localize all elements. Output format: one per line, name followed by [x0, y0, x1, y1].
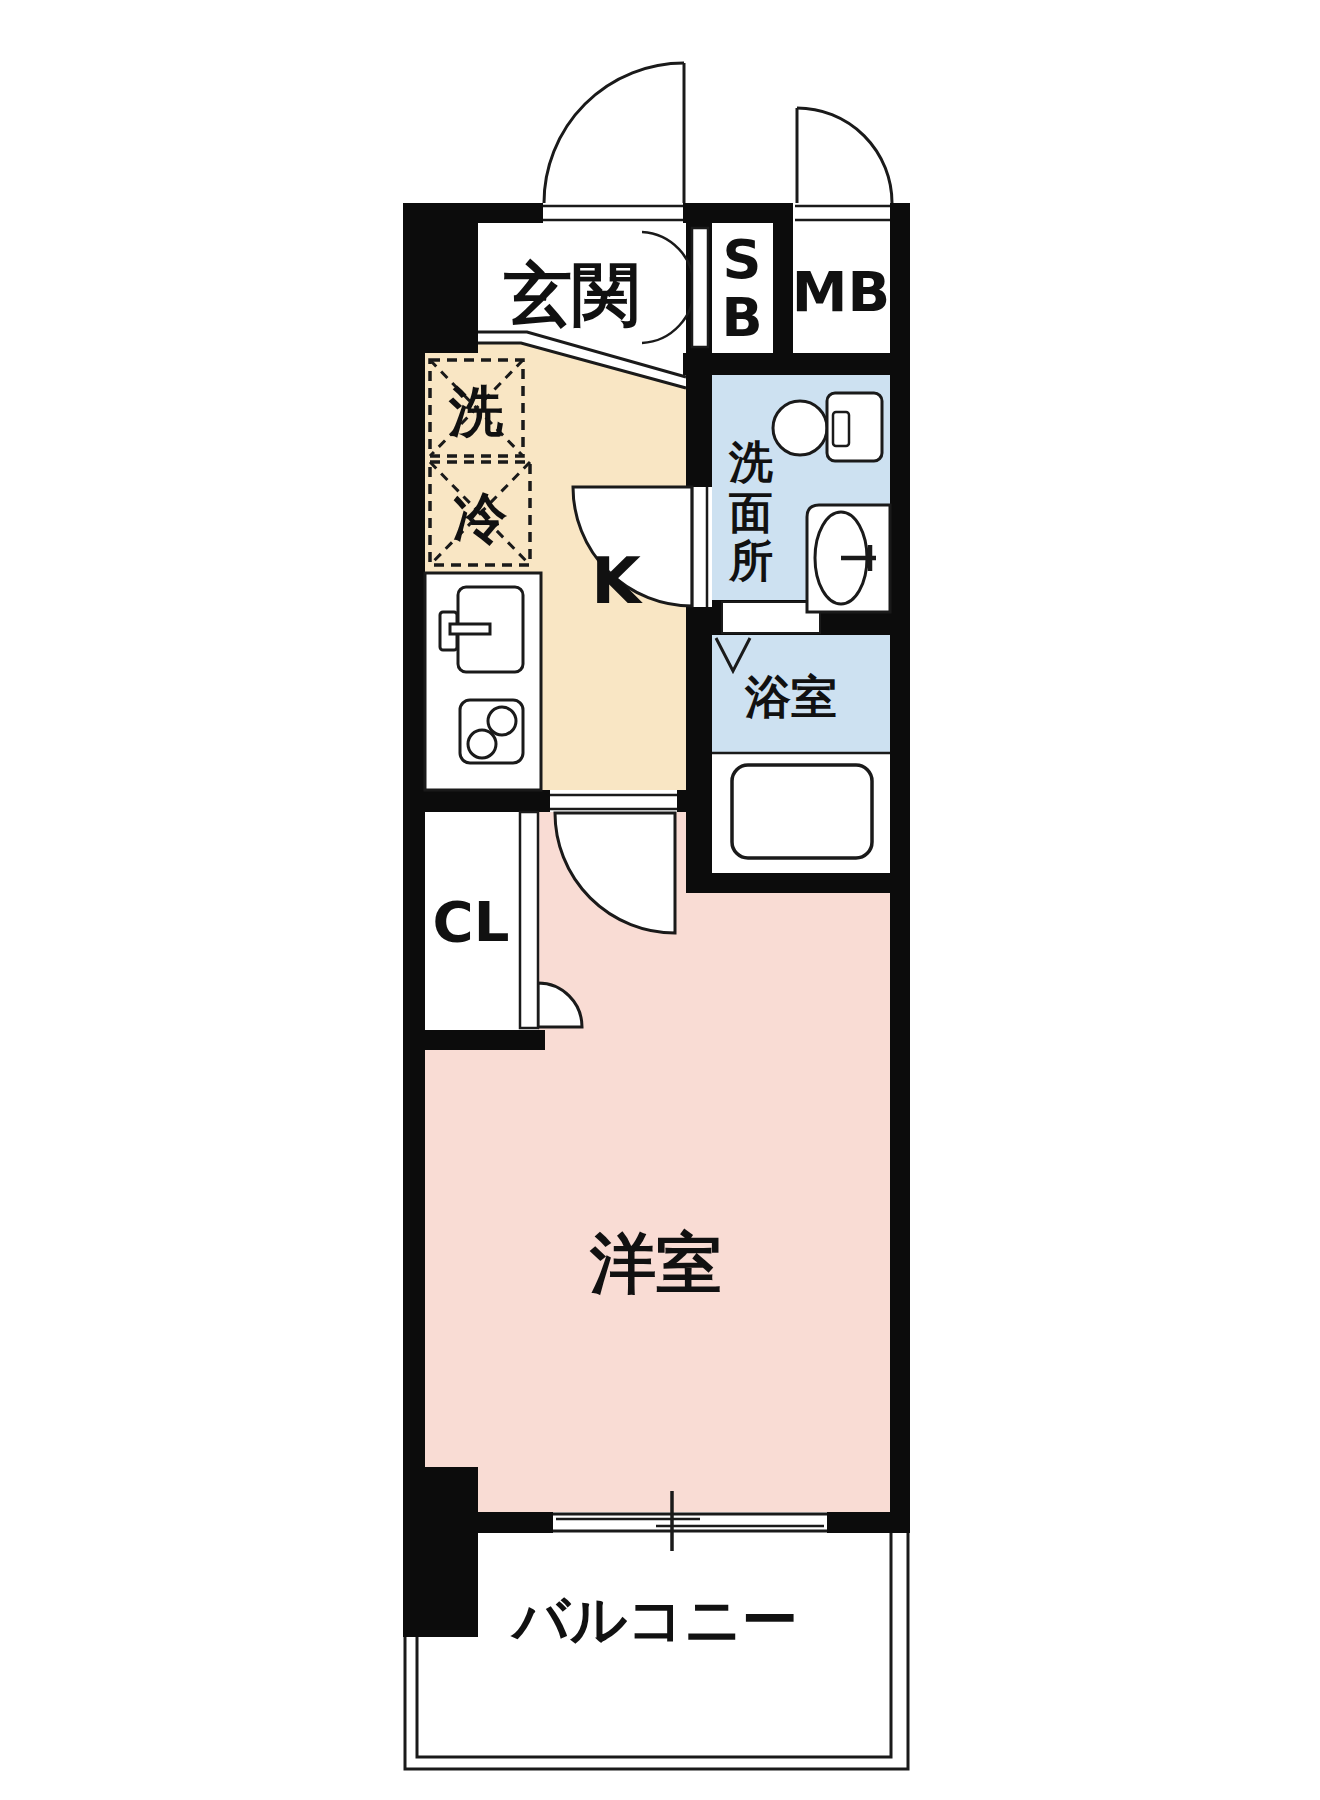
western-room-label: 洋室	[589, 1225, 722, 1302]
toilet-bowl	[773, 401, 827, 455]
kitchen-faucet-spout	[450, 624, 490, 634]
floorplan-drawing: 玄関 S B MB K 洗 冷 洗 面 所 浴室 CL 洋室 バルコニー	[0, 0, 1320, 1800]
shoebox-label-bottom: B	[721, 286, 762, 349]
wall-window-left	[475, 1512, 553, 1533]
bath-doorway-opening	[722, 602, 820, 633]
wall-pillar-bottom-left	[403, 1467, 478, 1637]
entrance-door-swing-arc	[544, 63, 684, 203]
floorplan-page: 玄関 S B MB K 洗 冷 洗 面 所 浴室 CL 洋室 バルコニー	[0, 0, 1320, 1800]
fridge-label: 冷	[453, 487, 508, 550]
wall-door-post	[677, 790, 712, 812]
meterbox-label: MB	[792, 259, 890, 324]
kitchen-label: K	[591, 544, 643, 618]
bathtub	[732, 765, 872, 858]
shoebox-label-top: S	[723, 228, 762, 291]
washroom-label-char2: 面	[728, 487, 773, 538]
bathroom-label: 浴室	[744, 670, 837, 724]
wall-window-right	[827, 1512, 910, 1533]
washroom-label-char1: 洗	[728, 436, 773, 487]
balcony-label: バルコニー	[509, 1587, 797, 1652]
shoebox-door-strip	[692, 228, 708, 347]
meterbox-door-swing-arc	[797, 108, 892, 203]
wall-left	[403, 223, 425, 1470]
closet-label: CL	[433, 889, 510, 954]
wall-wet-area-top	[683, 353, 910, 375]
washer-label: 洗	[448, 380, 504, 443]
wall-kitchen-bottom	[403, 790, 550, 812]
wall-closet-bottom	[403, 1030, 545, 1050]
stove-burner-left	[468, 730, 496, 758]
wall-bath-bottom	[686, 873, 910, 893]
toilet-flush-panel	[833, 412, 849, 446]
wall-right	[890, 203, 910, 1533]
wall-sb-mb-divider	[773, 222, 793, 355]
washroom-label-char3: 所	[728, 535, 773, 586]
entrance-label: 玄関	[503, 255, 640, 334]
stove-burner-right	[488, 707, 516, 735]
closet-door-strip	[520, 812, 538, 1028]
